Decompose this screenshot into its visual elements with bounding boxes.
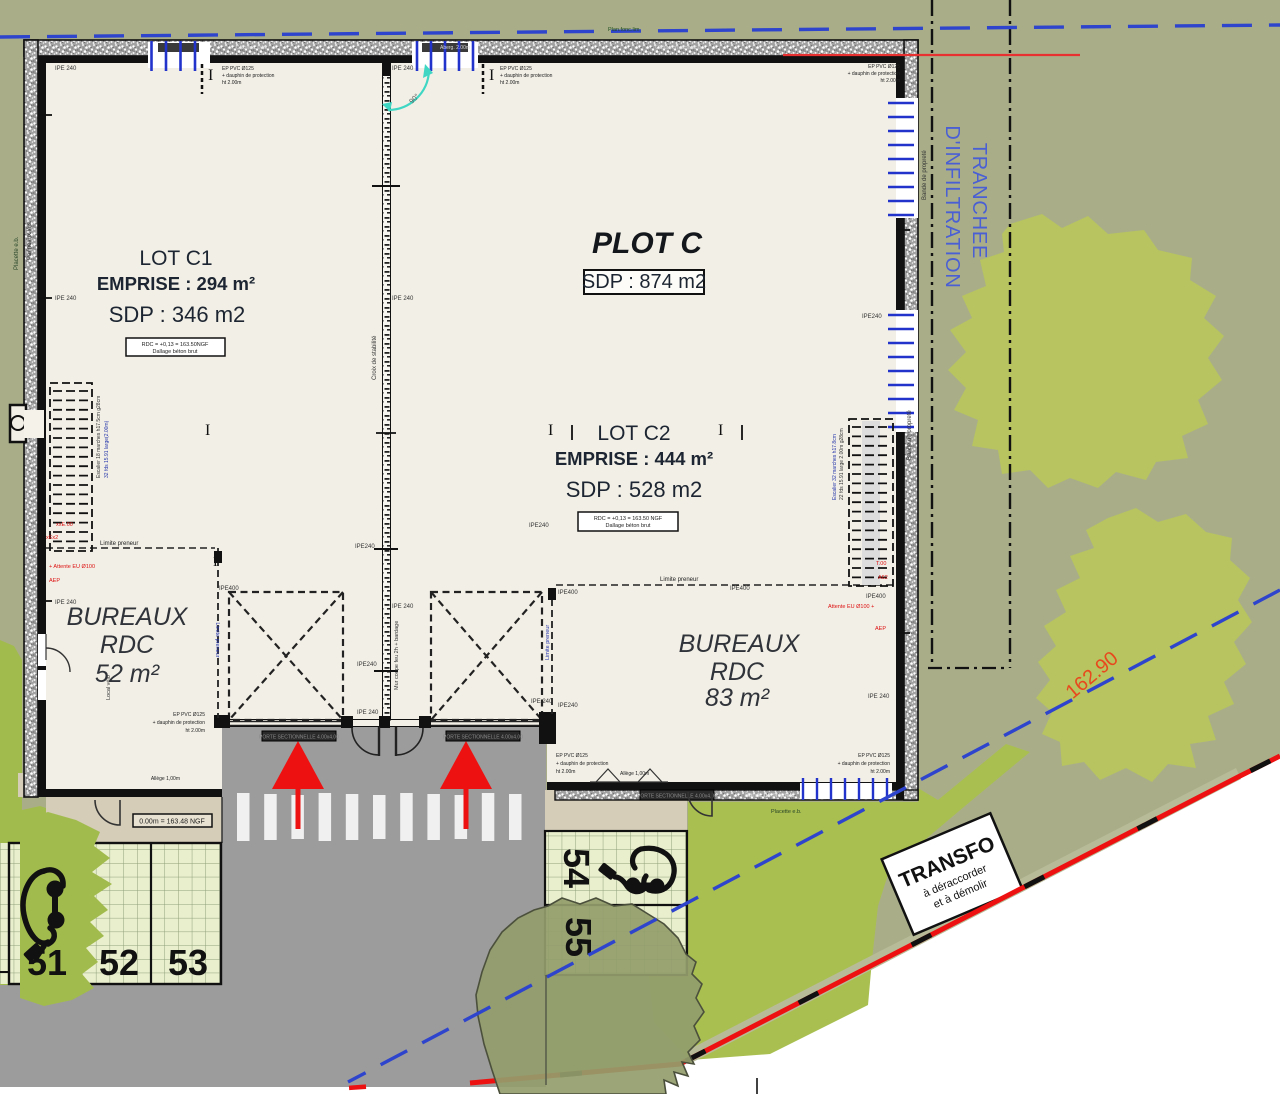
svg-text:Attente EU Ø100 +: Attente EU Ø100 +: [828, 604, 874, 610]
svg-text:Croix de stabilité: Croix de stabilité: [372, 335, 378, 380]
svg-text:T.00: T.00: [876, 561, 886, 567]
svg-text:IPE 240: IPE 240: [392, 604, 414, 610]
svg-text:IPE 240: IPE 240: [868, 694, 890, 700]
svg-text:EP PVC Ø125: EP PVC Ø125: [222, 66, 254, 72]
svg-text:Bande de propreté: Bande de propreté: [745, 793, 795, 799]
svg-text:Dallage béton brut: Dallage béton brut: [153, 349, 198, 355]
svg-text:BUREAUX: BUREAUX: [67, 603, 189, 631]
svg-text:52 m²: 52 m²: [95, 660, 161, 688]
svg-text:PLOT C: PLOT C: [592, 227, 703, 260]
svg-text:RDC = +0,13 = 163.50 NGF: RDC = +0,13 = 163.50 NGF: [594, 516, 663, 522]
svg-text:AEP: AEP: [875, 626, 886, 632]
svg-text:ht 2.00m: ht 2.00m: [500, 80, 519, 86]
svg-text:IPE240: IPE240: [357, 662, 377, 668]
svg-text:IPE240: IPE240: [558, 703, 578, 709]
svg-text:Dallage béton brut: Dallage béton brut: [606, 523, 651, 529]
svg-text:Placette e.b.: Placette e.b.: [771, 809, 802, 815]
svg-text:ht 2.00m: ht 2.00m: [556, 769, 575, 775]
svg-text:53: 53: [168, 942, 208, 983]
svg-text:I: I: [548, 422, 553, 439]
svg-text:IPE 240: IPE 240: [531, 699, 553, 705]
svg-text:IPE400: IPE400: [866, 594, 886, 600]
svg-text:PORTE SECTIONNELLE 4.00x4.00: PORTE SECTIONNELLE 4.00x4.00: [443, 735, 523, 741]
svg-text:83 m²: 83 m²: [705, 684, 771, 712]
svg-text:Clôture 2.00m: Clôture 2.00m: [236, 45, 267, 51]
svg-text:I: I: [213, 555, 218, 570]
svg-text:Panneaux lais: Panneaux lais: [27, 222, 33, 260]
svg-text:EMPRISE : 444 m²: EMPRISE : 444 m²: [555, 448, 713, 469]
svg-text:Escalier 18 marches h17.5cm g2: Escalier 18 marches h17.5cm g28cm: [96, 396, 102, 478]
svg-text:Aberg. 2.00m: Aberg. 2.00m: [440, 45, 470, 51]
svg-text:RDC: RDC: [100, 631, 155, 659]
svg-text:ht 2.00m: ht 2.00m: [881, 78, 900, 84]
svg-text:Placette e.b.: Placette e.b.: [14, 236, 20, 270]
svg-text:ht 2.00m: ht 2.00m: [222, 80, 241, 86]
svg-text:LOT C1: LOT C1: [139, 247, 212, 270]
svg-text:ht 2.00m: ht 2.00m: [186, 728, 205, 734]
svg-text:52: 52: [99, 942, 139, 983]
svg-text:xEx2: xEx2: [46, 535, 58, 541]
svg-text:0.00m = 163.48 NGF: 0.00m = 163.48 NGF: [139, 819, 205, 826]
svg-text:Escalier 32 marches h17.8cm: Escalier 32 marches h17.8cm: [832, 434, 838, 500]
svg-text:IPE 240: IPE 240: [357, 710, 379, 716]
svg-text:IPE400: IPE400: [730, 586, 750, 592]
svg-text:Limite preneur: Limite preneur: [100, 541, 138, 547]
svg-text:ht 2.00m: ht 2.00m: [871, 769, 890, 775]
svg-text:Limite preneur: Limite preneur: [660, 577, 698, 583]
svg-text:Allège 1,00m: Allège 1,00m: [151, 776, 180, 782]
svg-text:SDP : 528 m2: SDP : 528 m2: [566, 477, 703, 502]
svg-text:EP PVC Ø125: EP PVC Ø125: [500, 66, 532, 72]
svg-text:+ dauphin de protection: + dauphin de protection: [153, 720, 206, 726]
svg-text:AEP: AEP: [49, 578, 60, 584]
svg-text:A62: A62: [878, 575, 888, 581]
svg-text:D'INFILTRATION: D'INFILTRATION: [941, 125, 963, 288]
svg-text:Bande de propreté: Bande de propreté: [907, 410, 913, 460]
svg-text:TRANCHEE: TRANCHEE: [968, 143, 990, 259]
svg-text:IPE 240: IPE 240: [392, 296, 414, 302]
svg-text:54: 54: [556, 848, 597, 888]
svg-text:22 fds 15.91 large 2.00m g28cm: 22 fds 15.91 large 2.00m g28cm: [839, 428, 845, 500]
svg-text:IPE 240: IPE 240: [55, 296, 77, 302]
svg-text:Local vélo: Local vélo: [106, 675, 112, 700]
svg-text:LOT C2: LOT C2: [597, 422, 670, 445]
svg-text:+ dauphin de protection: + dauphin de protection: [500, 73, 553, 79]
svg-text:PORTE SECTIONNELLE 4.00x4.00: PORTE SECTIONNELLE 4.00x4.00: [259, 735, 339, 741]
svg-text:SDP : 346 m2: SDP : 346 m2: [109, 302, 246, 327]
svg-text:IPE 240: IPE 240: [55, 600, 77, 606]
svg-text:RDC = +0,13 = 163.50NGF: RDC = +0,13 = 163.50NGF: [142, 342, 209, 348]
svg-text:+ dauphin de protection: + dauphin de protection: [556, 761, 609, 767]
svg-text:BUREAUX: BUREAUX: [679, 630, 801, 658]
svg-text:IPE240: IPE240: [862, 314, 882, 320]
svg-text:I: I: [718, 422, 723, 439]
svg-text:xxE.00: xxE.00: [56, 522, 73, 528]
svg-text:+ dauphin de protection: + dauphin de protection: [222, 73, 275, 79]
svg-text:IPE400: IPE400: [558, 590, 578, 596]
svg-text:I: I: [205, 422, 210, 439]
svg-text:IPE 240: IPE 240: [55, 66, 77, 72]
svg-text:Clôture en panneaux: Clôture en panneaux: [655, 45, 702, 51]
svg-text:SDP : 874 m2: SDP : 874 m2: [582, 271, 706, 293]
svg-text:+ dauphin de protection: + dauphin de protection: [848, 71, 901, 77]
svg-text:Mur coupe feu 2h + bardage: Mur coupe feu 2h + bardage: [394, 621, 400, 690]
svg-text:RDC: RDC: [710, 658, 765, 686]
svg-text:Limite preneur: Limite preneur: [545, 625, 551, 660]
svg-text:EP PVC Ø125: EP PVC Ø125: [868, 64, 900, 70]
svg-text:EP PVC Ø125: EP PVC Ø125: [173, 712, 205, 718]
svg-text:Limite preneur: Limite preneur: [214, 622, 220, 657]
svg-text:Plan.fonc.lim: Plan.fonc.lim: [608, 27, 640, 33]
svg-text:IPE240: IPE240: [529, 523, 549, 529]
svg-text:EP PVC Ø125: EP PVC Ø125: [556, 753, 588, 759]
svg-text:PORTE SECTIONNELLE 4.00x4.00: PORTE SECTIONNELLE 4.00x4.00: [637, 794, 717, 800]
svg-text:I: I: [208, 67, 213, 84]
svg-text:32 fds 15.91 large(2.00m): 32 fds 15.91 large(2.00m): [104, 420, 110, 478]
svg-text:IPE400: IPE400: [219, 586, 239, 592]
svg-text:EP PVC Ø125: EP PVC Ø125: [858, 753, 890, 759]
svg-text:Bande de propreté: Bande de propreté: [922, 150, 928, 200]
svg-text:IPE 240: IPE 240: [392, 66, 414, 72]
svg-text:IPE240: IPE240: [355, 544, 375, 550]
svg-text:+ dauphin de protection: + dauphin de protection: [838, 761, 891, 767]
svg-text:I: I: [489, 67, 494, 84]
svg-text:EMPRISE : 294 m²: EMPRISE : 294 m²: [97, 273, 255, 294]
svg-text:+ Attente EU Ø100: + Attente EU Ø100: [49, 564, 95, 570]
